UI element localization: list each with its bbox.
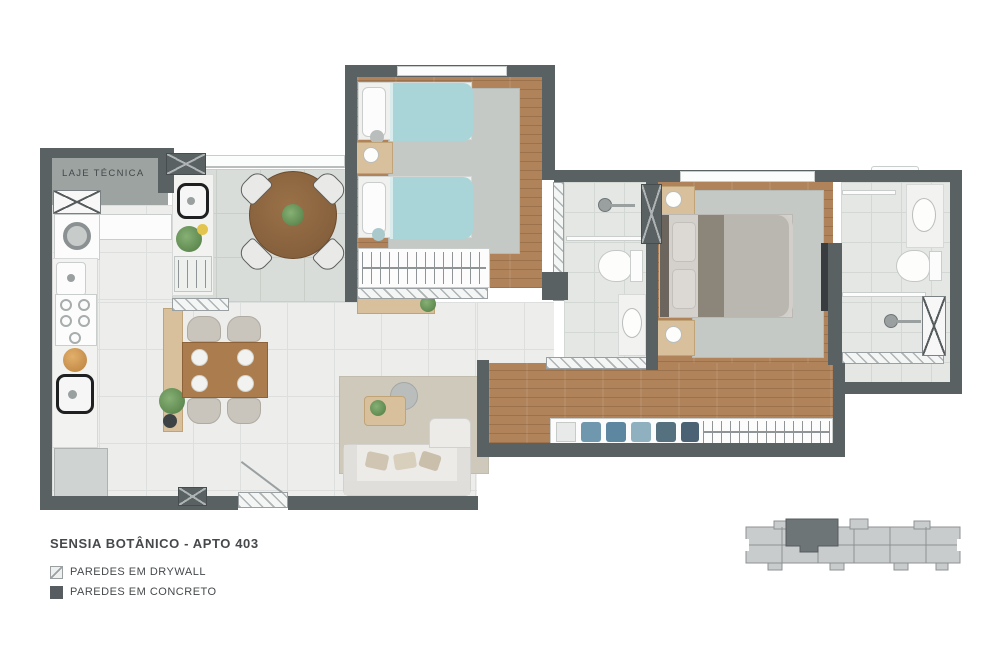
terrace-railing: [204, 155, 345, 168]
nightstand-lamp-icon: [363, 147, 379, 163]
shower-arm: [611, 204, 635, 207]
fruit-bowl: [63, 348, 87, 372]
wall-master-bottom: [477, 443, 845, 457]
pillow: [672, 269, 696, 309]
room-hall: [477, 302, 554, 363]
island-faucet-icon: [187, 197, 195, 205]
folded-clothes: [556, 422, 576, 442]
nightstand-lamp-icon: [665, 191, 682, 208]
kitchen-faucet-icon: [68, 390, 77, 399]
bath2-shelf: [842, 190, 896, 195]
legend-item-concrete: PAREDES EM CONCRETO: [50, 582, 310, 602]
toilet-tank: [630, 250, 643, 282]
duvet: [724, 215, 793, 317]
keyplan-right-notch: [957, 539, 964, 551]
dining-chair: [187, 316, 221, 342]
drywall-swatch-icon: [50, 566, 63, 579]
grill-lines-icon: [178, 260, 208, 288]
pillar-laundry: [53, 190, 101, 214]
page-title: SENSIA BOTÂNICO - APTO 403: [50, 536, 370, 554]
wall-bedroom2-left: [345, 65, 357, 302]
laundry-sink-faucet-icon: [67, 274, 75, 282]
toilet: [598, 250, 632, 282]
washing-machine-drum-icon: [63, 222, 91, 250]
shaft-bath2: [922, 296, 946, 356]
bedroom2-wardrobe: [358, 248, 490, 288]
sofa-chaise: [429, 418, 471, 448]
place-setting: [237, 375, 254, 392]
shower-head-icon: [598, 198, 612, 212]
wall-bath2-right: [950, 170, 962, 394]
wall-bath2-bottom: [833, 382, 962, 394]
burner-icon: [60, 299, 72, 311]
folded-clothes: [681, 422, 699, 442]
plush-toy: [372, 228, 385, 241]
wardrobe-rail: [362, 267, 486, 269]
place-setting: [237, 349, 254, 366]
sofa-back: [344, 481, 470, 495]
concrete-swatch-icon: [50, 586, 63, 599]
drywall-bath1-bottom: [546, 357, 658, 369]
drywall-bedroom2-bottom: [357, 288, 488, 299]
bath2-shelf-2: [842, 292, 926, 297]
bath1-shelf: [566, 236, 642, 241]
wall-bedroom2-right: [542, 65, 555, 180]
burner-icon: [60, 315, 72, 327]
pillow: [362, 182, 386, 234]
laje-tecnica-label: LAJE TÉCNICA: [62, 168, 166, 182]
grill: [174, 256, 212, 292]
sofa-cushion: [393, 451, 417, 470]
sofa: [343, 444, 471, 496]
wall-bottom-living-b: [288, 496, 478, 510]
folded-clothes: [606, 422, 626, 442]
wall-bottom-living-a: [40, 496, 238, 510]
folded-clothes: [656, 422, 676, 442]
coffee-table-plant: [370, 400, 386, 416]
wall-left: [40, 148, 52, 510]
table-centerpiece-plant: [282, 204, 304, 226]
laundry-shelf: [98, 214, 172, 240]
burner-icon: [78, 315, 90, 327]
keyplan-left-notch: [742, 539, 749, 551]
toilet: [896, 250, 930, 282]
legend-item-drywall: PAREDES EM DRYWALL: [50, 562, 310, 582]
pillow: [672, 222, 696, 262]
closet-rail: [703, 431, 830, 433]
blanket-fold: [698, 215, 726, 317]
folded-clothes: [631, 422, 651, 442]
dining-chair: [187, 398, 221, 424]
nightstand-lamp-icon: [665, 326, 682, 343]
place-setting: [191, 349, 208, 366]
dining-table: [182, 342, 268, 398]
double-bed: [659, 214, 793, 318]
burner-icon: [78, 299, 90, 311]
burner-icon: [69, 332, 81, 344]
pillar-terrace: [166, 153, 206, 175]
place-setting: [191, 375, 208, 392]
building-keyplan: [742, 512, 964, 580]
duvet: [390, 83, 473, 141]
sofa-cushion: [365, 451, 390, 471]
duvet: [390, 177, 473, 239]
drywall-terrace-threshold: [172, 298, 229, 311]
legend-label: PAREDES EM CONCRETO: [70, 586, 217, 598]
floorplan-page: LAJE TÉCNICA: [0, 0, 1000, 665]
wall-living-corridor: [477, 360, 489, 457]
folded-clothes: [581, 422, 601, 442]
wall-top-left: [40, 148, 172, 158]
bath1-basin-icon: [622, 308, 642, 338]
refrigerator: [54, 448, 108, 498]
entry-threshold: [238, 492, 288, 508]
flowers: [197, 224, 208, 235]
wall-corner-post: [542, 272, 568, 300]
bath2-basin-icon: [912, 198, 936, 232]
plant-pot: [163, 414, 177, 428]
shower-arm: [897, 320, 921, 323]
dining-chair: [227, 316, 261, 342]
shower-head-icon: [884, 314, 898, 328]
toilet-tank: [929, 251, 942, 281]
keyplan-svg: [742, 512, 964, 580]
shaft-bath1: [641, 184, 662, 244]
dining-chair: [227, 398, 261, 424]
legend-label: PAREDES EM DRYWALL: [70, 566, 206, 578]
sofa-cushion: [418, 450, 442, 471]
pillar-living: [178, 487, 207, 506]
stove: [55, 294, 97, 346]
master-window: [680, 171, 815, 182]
bedroom2-window: [397, 66, 507, 76]
legend: PAREDES EM DRYWALL PAREDES EM CONCRETO: [50, 562, 310, 606]
wall-bath2-left: [828, 243, 842, 365]
